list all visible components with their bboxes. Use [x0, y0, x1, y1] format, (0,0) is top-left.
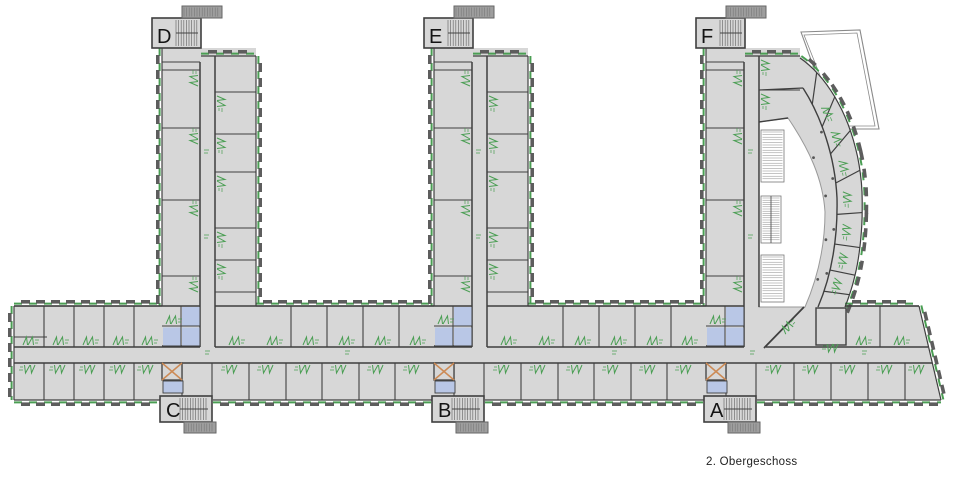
- tower-b-label: B: [438, 400, 451, 422]
- tower-f-label: F: [701, 26, 713, 48]
- tower-e-label: E: [429, 26, 442, 48]
- floor-title: 2. Obergeschoss: [706, 456, 797, 468]
- floorplan-drawing: D E F C B A: [0, 0, 960, 490]
- tower-c-label: C: [166, 400, 180, 422]
- tower-a-label: A: [710, 400, 724, 422]
- floorplan: D E F C B A 2. Obergeschoss: [0, 0, 960, 490]
- tower-d-label: D: [157, 26, 171, 48]
